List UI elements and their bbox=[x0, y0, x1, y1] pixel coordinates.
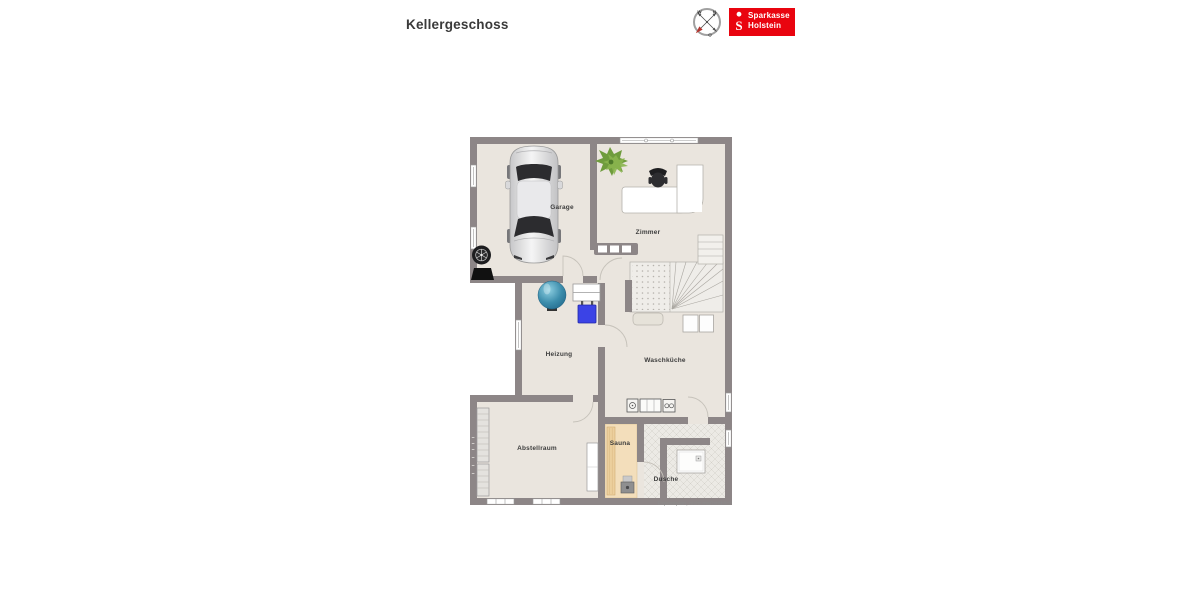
room-label-waschkueche: Waschküche bbox=[644, 357, 686, 364]
sauna-bench-icon bbox=[607, 427, 615, 495]
brand-name-line2: Holstein bbox=[748, 21, 790, 31]
shelving-icon bbox=[477, 408, 489, 496]
window bbox=[471, 165, 476, 187]
meter-cabinet-icon bbox=[627, 399, 675, 412]
washing-machine-icon bbox=[683, 315, 714, 332]
shower-tray-icon bbox=[677, 450, 705, 473]
window bbox=[726, 393, 731, 412]
window bbox=[726, 430, 731, 447]
window bbox=[516, 320, 521, 350]
sideboard-icon bbox=[594, 243, 638, 255]
window bbox=[620, 138, 698, 143]
room-label-sauna: Sauna bbox=[610, 440, 631, 447]
window bbox=[533, 499, 560, 504]
compass-icon: W N O bbox=[689, 4, 725, 40]
sparkasse-s-icon: S bbox=[732, 11, 748, 33]
floor-plan bbox=[470, 137, 732, 505]
utility-tray-icon bbox=[633, 313, 663, 325]
room-label-garage: Garage bbox=[550, 204, 574, 211]
room-label-abstellraum: Abstellraum bbox=[517, 445, 557, 452]
room-label-zimmer: Zimmer bbox=[636, 229, 661, 236]
cupboard-icon bbox=[587, 443, 598, 491]
wall-shelf-icon bbox=[573, 284, 600, 301]
compass-letter-east: O bbox=[708, 33, 712, 38]
brand-name-line1: Sparkasse bbox=[748, 11, 790, 21]
compass-letter-north: N bbox=[713, 10, 716, 15]
window bbox=[487, 499, 514, 504]
floor-plan-page: Kellergeschoss W N O S Sparkasse Holstei… bbox=[0, 0, 1200, 600]
sauna-heater-icon bbox=[621, 476, 634, 493]
plan-caption: Exposéplan, nicht maßstäblich bbox=[600, 501, 732, 507]
page-title: Kellergeschoss bbox=[406, 17, 509, 32]
window bbox=[471, 227, 476, 249]
svg-text:S: S bbox=[735, 18, 742, 33]
room-label-dusche: Dusche bbox=[654, 476, 679, 483]
sparkasse-logo: S Sparkasse Holstein bbox=[729, 8, 795, 36]
room-label-heizung: Heizung bbox=[546, 351, 573, 358]
